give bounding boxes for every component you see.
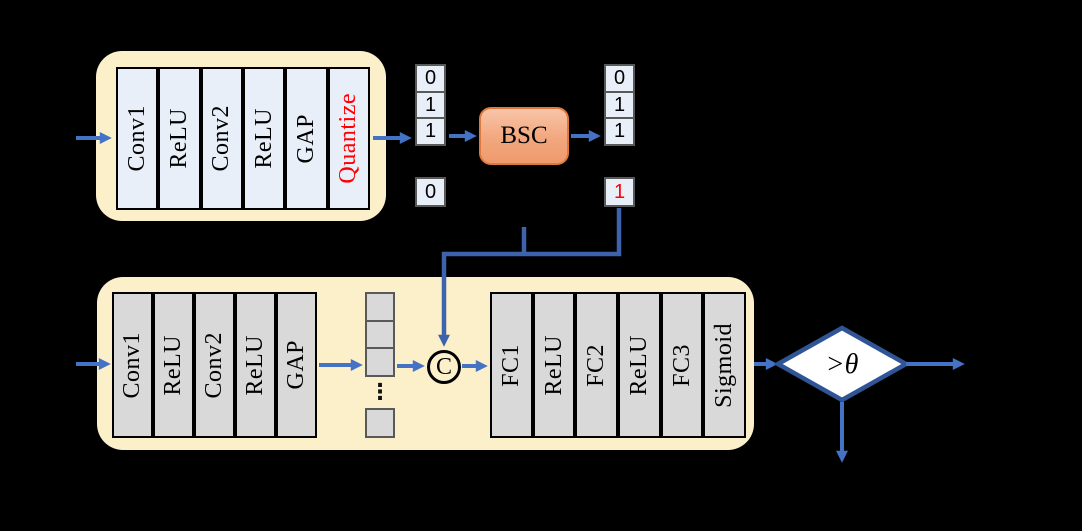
- architecture-diagram: Conv1 ReLU Conv2 ReLU GAP Quantize 0 1 1…: [0, 0, 1082, 531]
- bit-cell: 1: [415, 117, 446, 146]
- block-label: FC3: [669, 344, 696, 387]
- bit-vector-input: 0 1 1: [415, 64, 446, 146]
- block-label: Conv2: [201, 332, 228, 399]
- block-relu3: ReLU: [533, 292, 576, 438]
- block-quantize: Quantize: [328, 67, 370, 210]
- block-label: Sigmoid: [711, 323, 738, 408]
- feature-cell: [365, 347, 395, 377]
- bsc-label: BSC: [500, 122, 547, 150]
- bit-cell-extra-input: 0: [415, 177, 446, 207]
- bsc-channel-block: BSC: [479, 107, 569, 165]
- block-label: ReLU: [626, 335, 653, 396]
- block-fc1: FC1: [490, 292, 533, 438]
- fc-head-blocks: FC1 ReLU FC2 ReLU FC3 Sigmoid: [490, 292, 746, 438]
- block-fc2: FC2: [575, 292, 618, 438]
- block-relu2-bottom: ReLU: [235, 292, 276, 438]
- vertical-ellipsis: ⋮: [365, 378, 395, 408]
- block-label: ReLU: [242, 335, 269, 396]
- block-gap-bottom: GAP: [276, 292, 317, 438]
- feature-vector-top-squares: [365, 292, 395, 377]
- block-relu4: ReLU: [618, 292, 661, 438]
- bit-cell-flipped: 1: [604, 177, 635, 207]
- bit-cell: 0: [415, 64, 446, 93]
- block-label: GAP: [293, 114, 320, 164]
- top-encoder-blocks: Conv1 ReLU Conv2 ReLU GAP Quantize: [116, 67, 370, 210]
- block-label: GAP: [283, 340, 310, 390]
- block-label: Conv2: [208, 105, 235, 172]
- bit-cell: 1: [604, 117, 635, 146]
- block-label: Conv1: [124, 105, 151, 172]
- block-relu1-top: ReLU: [158, 67, 200, 210]
- block-label: FC2: [583, 344, 610, 387]
- block-relu1-bottom: ReLU: [153, 292, 194, 438]
- concatenation-node: C: [427, 350, 461, 384]
- bit-cell: 1: [604, 91, 635, 120]
- block-label-quantize: Quantize: [335, 93, 362, 184]
- block-conv1-bottom: Conv1: [112, 292, 153, 438]
- bit-cell: 1: [415, 91, 446, 120]
- bottom-encoder-blocks: Conv1 ReLU Conv2 ReLU GAP: [112, 292, 317, 438]
- block-sigmoid: Sigmoid: [703, 292, 746, 438]
- block-label: ReLU: [541, 335, 568, 396]
- block-label: FC1: [498, 344, 525, 387]
- concat-label: C: [436, 354, 452, 381]
- block-conv2-top: Conv2: [201, 67, 243, 210]
- threshold-label: >θ: [782, 347, 902, 383]
- block-fc3: FC3: [661, 292, 704, 438]
- block-relu2-top: ReLU: [243, 67, 285, 210]
- block-label: ReLU: [160, 335, 187, 396]
- bit-vector-output: 0 1 1: [604, 64, 635, 146]
- block-label: ReLU: [251, 108, 278, 169]
- block-label: ReLU: [166, 108, 193, 169]
- feature-cell: [365, 408, 395, 438]
- feature-cell: [365, 320, 395, 350]
- block-gap-top: GAP: [285, 67, 327, 210]
- block-conv2-bottom: Conv2: [194, 292, 235, 438]
- feature-vector-bottom-square: [365, 408, 395, 438]
- bit-cell: 0: [604, 64, 635, 93]
- block-conv1-top: Conv1: [116, 67, 158, 210]
- block-label: Conv1: [119, 332, 146, 399]
- feature-cell: [365, 292, 395, 322]
